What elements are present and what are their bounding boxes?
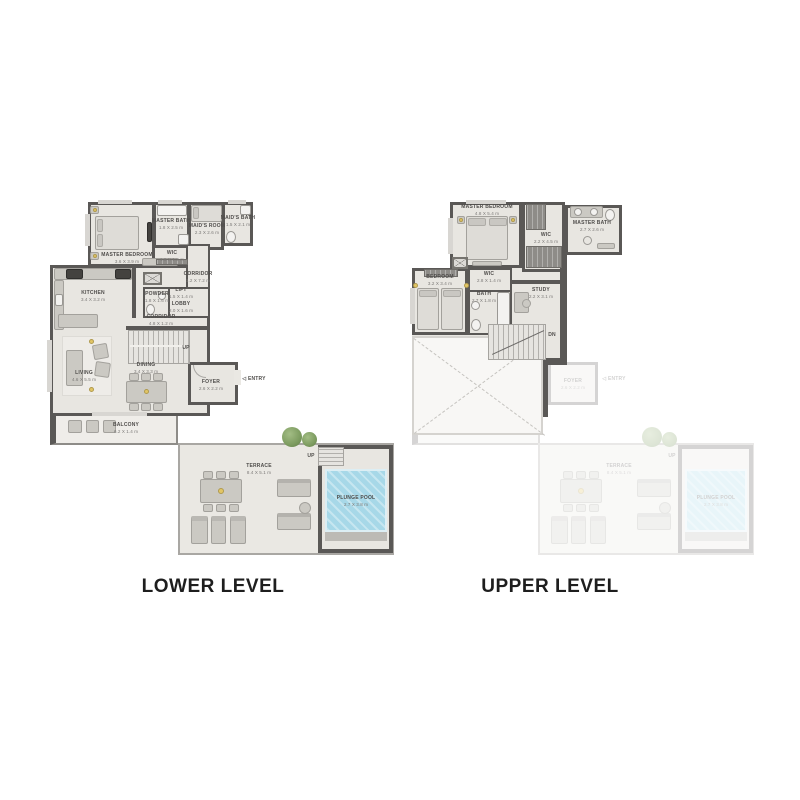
window — [448, 218, 453, 254]
floor-lamp — [89, 339, 94, 344]
dining-chair — [129, 403, 139, 411]
ghost-outdoor-chair — [589, 504, 599, 512]
dining-chair — [129, 373, 139, 381]
floorplan-canvas: FOYER 2.6 X 2.2 m ◁ ENTRY UP TERRACE 8.4… — [0, 0, 800, 800]
room-label-corridor-h: CORRIDOR 4.8 X 1.2 m — [147, 314, 176, 326]
up-label: UP — [182, 345, 189, 351]
ghost-outdoor-chair — [563, 504, 573, 512]
level-title-upper: UPPER LEVEL — [420, 576, 680, 598]
ghost-outdoor-chair — [576, 504, 586, 512]
pillow — [419, 290, 437, 297]
room-label-foyer: FOYER 2.6 X 2.2 m — [199, 379, 223, 391]
side-table — [299, 502, 311, 514]
wall — [512, 280, 564, 284]
lamp — [511, 218, 515, 222]
outdoor-chair — [216, 471, 226, 479]
ghost-candle — [578, 488, 584, 494]
room-label-upper-bedroom: BEDROOM 3.2 X 3.4 m — [426, 274, 454, 286]
pillow — [97, 234, 103, 247]
kitchen-island — [58, 314, 98, 328]
window — [85, 214, 90, 246]
window — [47, 340, 52, 392]
cooktop — [66, 269, 83, 279]
pillow — [97, 219, 103, 232]
wall — [560, 252, 567, 365]
room-label-corridor-v: CORRIDOR 1.2 X 7.2 m — [184, 271, 213, 283]
ghost-tree — [662, 432, 677, 447]
ghost-sun-lounger — [590, 516, 606, 544]
sliding-door — [92, 412, 147, 416]
outdoor-sofa — [277, 479, 311, 497]
room-label-lift: LIFT 1.5 X 1.4 m — [169, 287, 193, 299]
room-label-plunge-pool: PLUNGE POOL 2.7 X 3.8 m — [337, 495, 376, 507]
elevator — [452, 257, 468, 269]
level-title-lower: LOWER LEVEL — [83, 576, 343, 598]
ghost-side-table — [659, 502, 671, 514]
desk-chair — [522, 299, 531, 308]
tree — [282, 427, 302, 447]
up-label: UP — [307, 453, 314, 459]
candle — [144, 389, 149, 394]
sun-lounger — [211, 516, 226, 544]
window — [410, 288, 415, 324]
room-label-maids-room: MAID'S ROOM 2.3 X 2.6 m — [189, 223, 225, 235]
room-label-upper-wic: WIC 2.2 X 4.5 m — [534, 232, 558, 244]
lamp — [464, 283, 469, 288]
fridge — [115, 269, 131, 279]
pool-deck — [325, 532, 387, 541]
basin — [590, 208, 598, 216]
room-label-upper-wic2: WIC 2.8 X 1.4 m — [477, 271, 501, 283]
room-label-upper-study: STUDY 2.2 X 3.1 m — [529, 287, 553, 299]
kitchen-sink — [55, 294, 63, 306]
room-label-wic: WIC 1.8 X 1.2 m — [160, 250, 184, 262]
stairs — [128, 330, 190, 364]
ghost-outdoor-chair — [563, 471, 573, 479]
lamp — [459, 218, 463, 222]
window — [158, 200, 182, 204]
floor-lamp — [89, 387, 94, 392]
bed-bench — [472, 261, 502, 266]
pillow — [193, 207, 199, 219]
ghost-room-label-foyer: FOYER 2.6 X 2.2 m — [561, 378, 585, 390]
pillow — [468, 218, 486, 226]
dining-chair — [153, 373, 163, 381]
armchair — [92, 343, 109, 360]
pillow — [443, 290, 461, 297]
room-label-dining: DINING 3.4 X 3.3 m — [134, 362, 158, 374]
room-label-powder: POWDER 1.8 X 1.6 m — [145, 291, 169, 303]
room-label-master-bath: MASTER BATH 1.8 X 2.5 m — [152, 218, 190, 230]
ghost-sun-lounger — [571, 516, 586, 544]
outdoor-sofa — [277, 513, 311, 530]
basin — [574, 208, 582, 216]
planter — [86, 420, 99, 433]
window — [228, 200, 246, 204]
ghost-outdoor-chair — [576, 471, 586, 479]
sink — [240, 205, 251, 215]
entry-label: ◁ ENTRY — [242, 376, 265, 382]
outdoor-chair — [216, 504, 226, 512]
room-label-living: LIVING 4.6 X 5.5 m — [72, 370, 96, 382]
ghost-outdoor-sofa — [637, 479, 671, 497]
outdoor-chair — [229, 471, 239, 479]
planter — [68, 420, 82, 433]
room-label-terrace: TERRACE 8.4 X 5.1 m — [246, 463, 272, 475]
room-label-maids-bath: MAID'S BATH 1.5 X 2.1 m — [221, 215, 255, 227]
room-label-upper-master-bedroom: MASTER BEDROOM 4.8 X 5.4 m — [461, 204, 512, 216]
room-label-balcony: BALCONY 6.2 X 1.4 m — [113, 422, 139, 434]
room-label-kitchen: KITCHEN 3.4 X 3.2 m — [81, 290, 105, 302]
dn-label: DN — [548, 332, 556, 338]
elevator — [143, 272, 162, 285]
lamp — [93, 254, 97, 258]
ghost-tree — [642, 427, 662, 447]
room-label-lobby: LOBBY 2.0 X 1.6 m — [169, 301, 193, 313]
room-label-master-bedroom: MASTER BEDROOM 3.6 X 3.9 m — [101, 252, 152, 264]
sink — [178, 234, 189, 245]
outdoor-chair — [203, 504, 213, 512]
pillow — [489, 218, 507, 226]
entry-opening — [234, 370, 241, 385]
ghost-room-label-plunge-pool: PLUNGE POOL 2.7 X 3.8 m — [697, 495, 736, 507]
outdoor-chair — [203, 471, 213, 479]
shower-drain — [583, 236, 592, 245]
stairs-rail — [130, 345, 188, 347]
lamp — [413, 283, 418, 288]
window — [98, 200, 132, 204]
sun-lounger — [191, 516, 208, 544]
toilet — [226, 231, 236, 243]
armchair — [94, 361, 111, 378]
dining-chair — [153, 403, 163, 411]
ghost-sun-lounger — [551, 516, 568, 544]
ghost-room-label-terrace: TERRACE 8.4 X 5.1 m — [606, 463, 632, 475]
ghost-outdoor-chair — [589, 471, 599, 479]
closet — [526, 204, 546, 230]
ghost-entry-label: ◁ ENTRY — [602, 376, 625, 382]
room-label-upper-bath: BATH 2.7 X 1.8 m — [472, 291, 496, 303]
tree — [302, 432, 317, 447]
ghost-pool-deck — [685, 532, 747, 541]
wall — [132, 265, 136, 318]
room-label-upper-master-bath: MASTER BATH 2.7 X 2.6 m — [573, 220, 611, 232]
sun-lounger — [230, 516, 246, 544]
outdoor-chair — [229, 504, 239, 512]
ghost-entry-arrow-icon: ◁ — [602, 376, 606, 382]
toilet — [471, 319, 481, 331]
ghost-outdoor-sofa — [637, 513, 671, 530]
closet — [526, 246, 562, 268]
up-stairs — [318, 447, 344, 466]
dining-chair — [141, 373, 151, 381]
bench — [597, 243, 615, 249]
bathtub — [157, 205, 187, 216]
candle — [218, 488, 224, 494]
dining-chair — [141, 403, 151, 411]
lamp — [93, 208, 97, 212]
entry-arrow-icon: ◁ — [242, 376, 246, 382]
ghost-up-label: UP — [668, 453, 675, 459]
